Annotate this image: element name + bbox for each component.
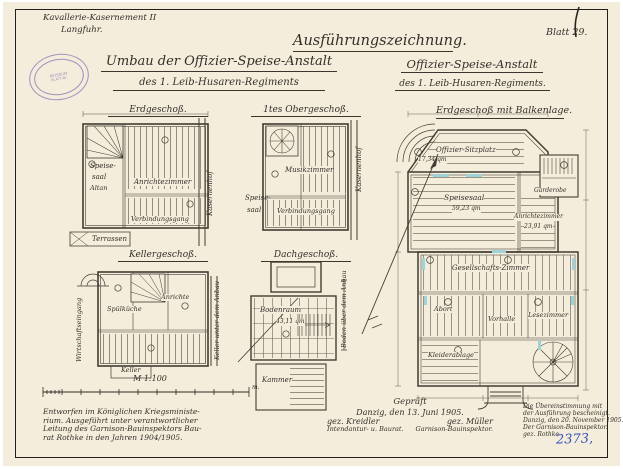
context-label-kasernenhof: Kasernenhof <box>206 171 215 216</box>
room-area-speisesaal: 59,23 qm <box>452 206 481 213</box>
scale-label: M 1:100 <box>39 374 261 383</box>
corner-note-line1: Kavallerie-Kasernement II <box>43 14 156 24</box>
room-area-bodenraum: 43,11 qm <box>276 319 305 326</box>
context-label-keller-anbau: Keller unter dem Anbau <box>214 281 223 360</box>
footer-note-block: Entworfen im Königlichen Kriegsministe- … <box>43 408 223 443</box>
room-label-verbindungsgang: Verbindungsgang <box>131 216 189 223</box>
approval-roles: Intendantur- u. Baurat. Garnison-Bauinsp… <box>319 426 501 433</box>
scale-bar-block: M 1:100 m. <box>39 374 261 400</box>
room-label-speise: Speise- <box>245 194 271 202</box>
room-label-speisesaal: Speisesaal <box>444 194 484 203</box>
approval-block: Geprüft Danzig, den 13. Juni 1905. gez. … <box>319 398 501 434</box>
plan-eg-title: Erdgeschoß. <box>108 105 208 117</box>
context-label-wirtschaftseingang: Wirtschaftseingang <box>76 298 85 362</box>
scale-bar <box>39 387 261 399</box>
drawing-sheet: Kavallerie-Kasernement II Langfuhr. MUSE… <box>3 2 620 466</box>
role-left: Intendantur- u. Baurat. <box>327 426 404 433</box>
title-right-line1: Offizier-Speise-Anstalt <box>401 58 543 73</box>
room-label-spuelkueche: Spülküche <box>107 306 142 313</box>
room-label-bodenraum: Bodenraum <box>260 306 301 314</box>
archive-number: 2373, <box>556 432 594 448</box>
plan-kellergeschoss: Kellergeschoß. Spülküche Anrichte Keller… <box>73 248 238 388</box>
north-arrow <box>348 142 448 342</box>
room-label-speise: Speise- <box>90 162 116 170</box>
scale-unit: m. <box>252 385 260 392</box>
role-right: Garnison-Bauinspektor. <box>416 426 493 433</box>
room-label-musikzimmer: Musikzimmer <box>285 166 333 174</box>
ink-mark <box>569 5 585 39</box>
room-area-anrichtezimmer: 23,91 qm <box>524 224 553 231</box>
plan-dg-title: Dachgeschoß. <box>261 250 351 262</box>
room-label-verbindungsgang: Verbindungsgang <box>277 208 335 215</box>
title-right-line2: des 1. Leib-Husaren-Regiments. <box>395 79 550 91</box>
room-label-kammer: Kammer <box>262 376 292 384</box>
room-label-anrichtezimmer: Anrichtezimmer <box>134 178 191 186</box>
plan-erdgeschoss: Erdgeschoß. Speise- saal Altan Anrichtez… <box>68 100 243 252</box>
approval-title: Geprüft <box>319 398 501 408</box>
plan-kg-title: Kellergeschoß. <box>118 250 208 262</box>
note-line-4: rat Rothke in den Jahren 1904/1905. <box>43 434 223 443</box>
room-label-anrichte: Anrichte <box>161 294 189 301</box>
room-label-lesezimmer: Lesezimmer <box>528 312 568 319</box>
room-label-vorhalle: Vorhalle <box>488 316 515 323</box>
room-label-anrichtezimmer: Anrichtezimmer <box>514 214 563 221</box>
plan-main-title: Erdgeschoß mit Balkenlage. <box>436 106 564 119</box>
room-label-kleiderablage: Kleiderablage <box>428 352 474 359</box>
room-label-saal: saal <box>247 206 261 214</box>
room-label-terrassen: Terrassen <box>92 235 127 243</box>
archive-stamp-inner-ring <box>31 55 86 99</box>
title-left-line1: Umbau der Offizier-Speise-Anstalt <box>101 55 337 72</box>
room-label-garderobe: Garderobe <box>534 188 567 195</box>
plan-og-title: 1tes Obergeschoß. <box>251 105 361 117</box>
corner-note-line2: Langfuhr. <box>61 26 103 36</box>
room-label-saal: saal <box>92 173 106 181</box>
title-left-line2: des 1. Leib-Husaren-Regiments <box>113 77 325 91</box>
room-label-gesellschaftszimmer: Gesellschafts-Zimmer <box>452 264 529 272</box>
room-label-altan: Altan <box>90 185 107 192</box>
drawing-type-title: Ausführungszeichnung. <box>293 33 453 52</box>
approval-date: Danzig, den 13. Juni 1905. <box>319 408 501 417</box>
